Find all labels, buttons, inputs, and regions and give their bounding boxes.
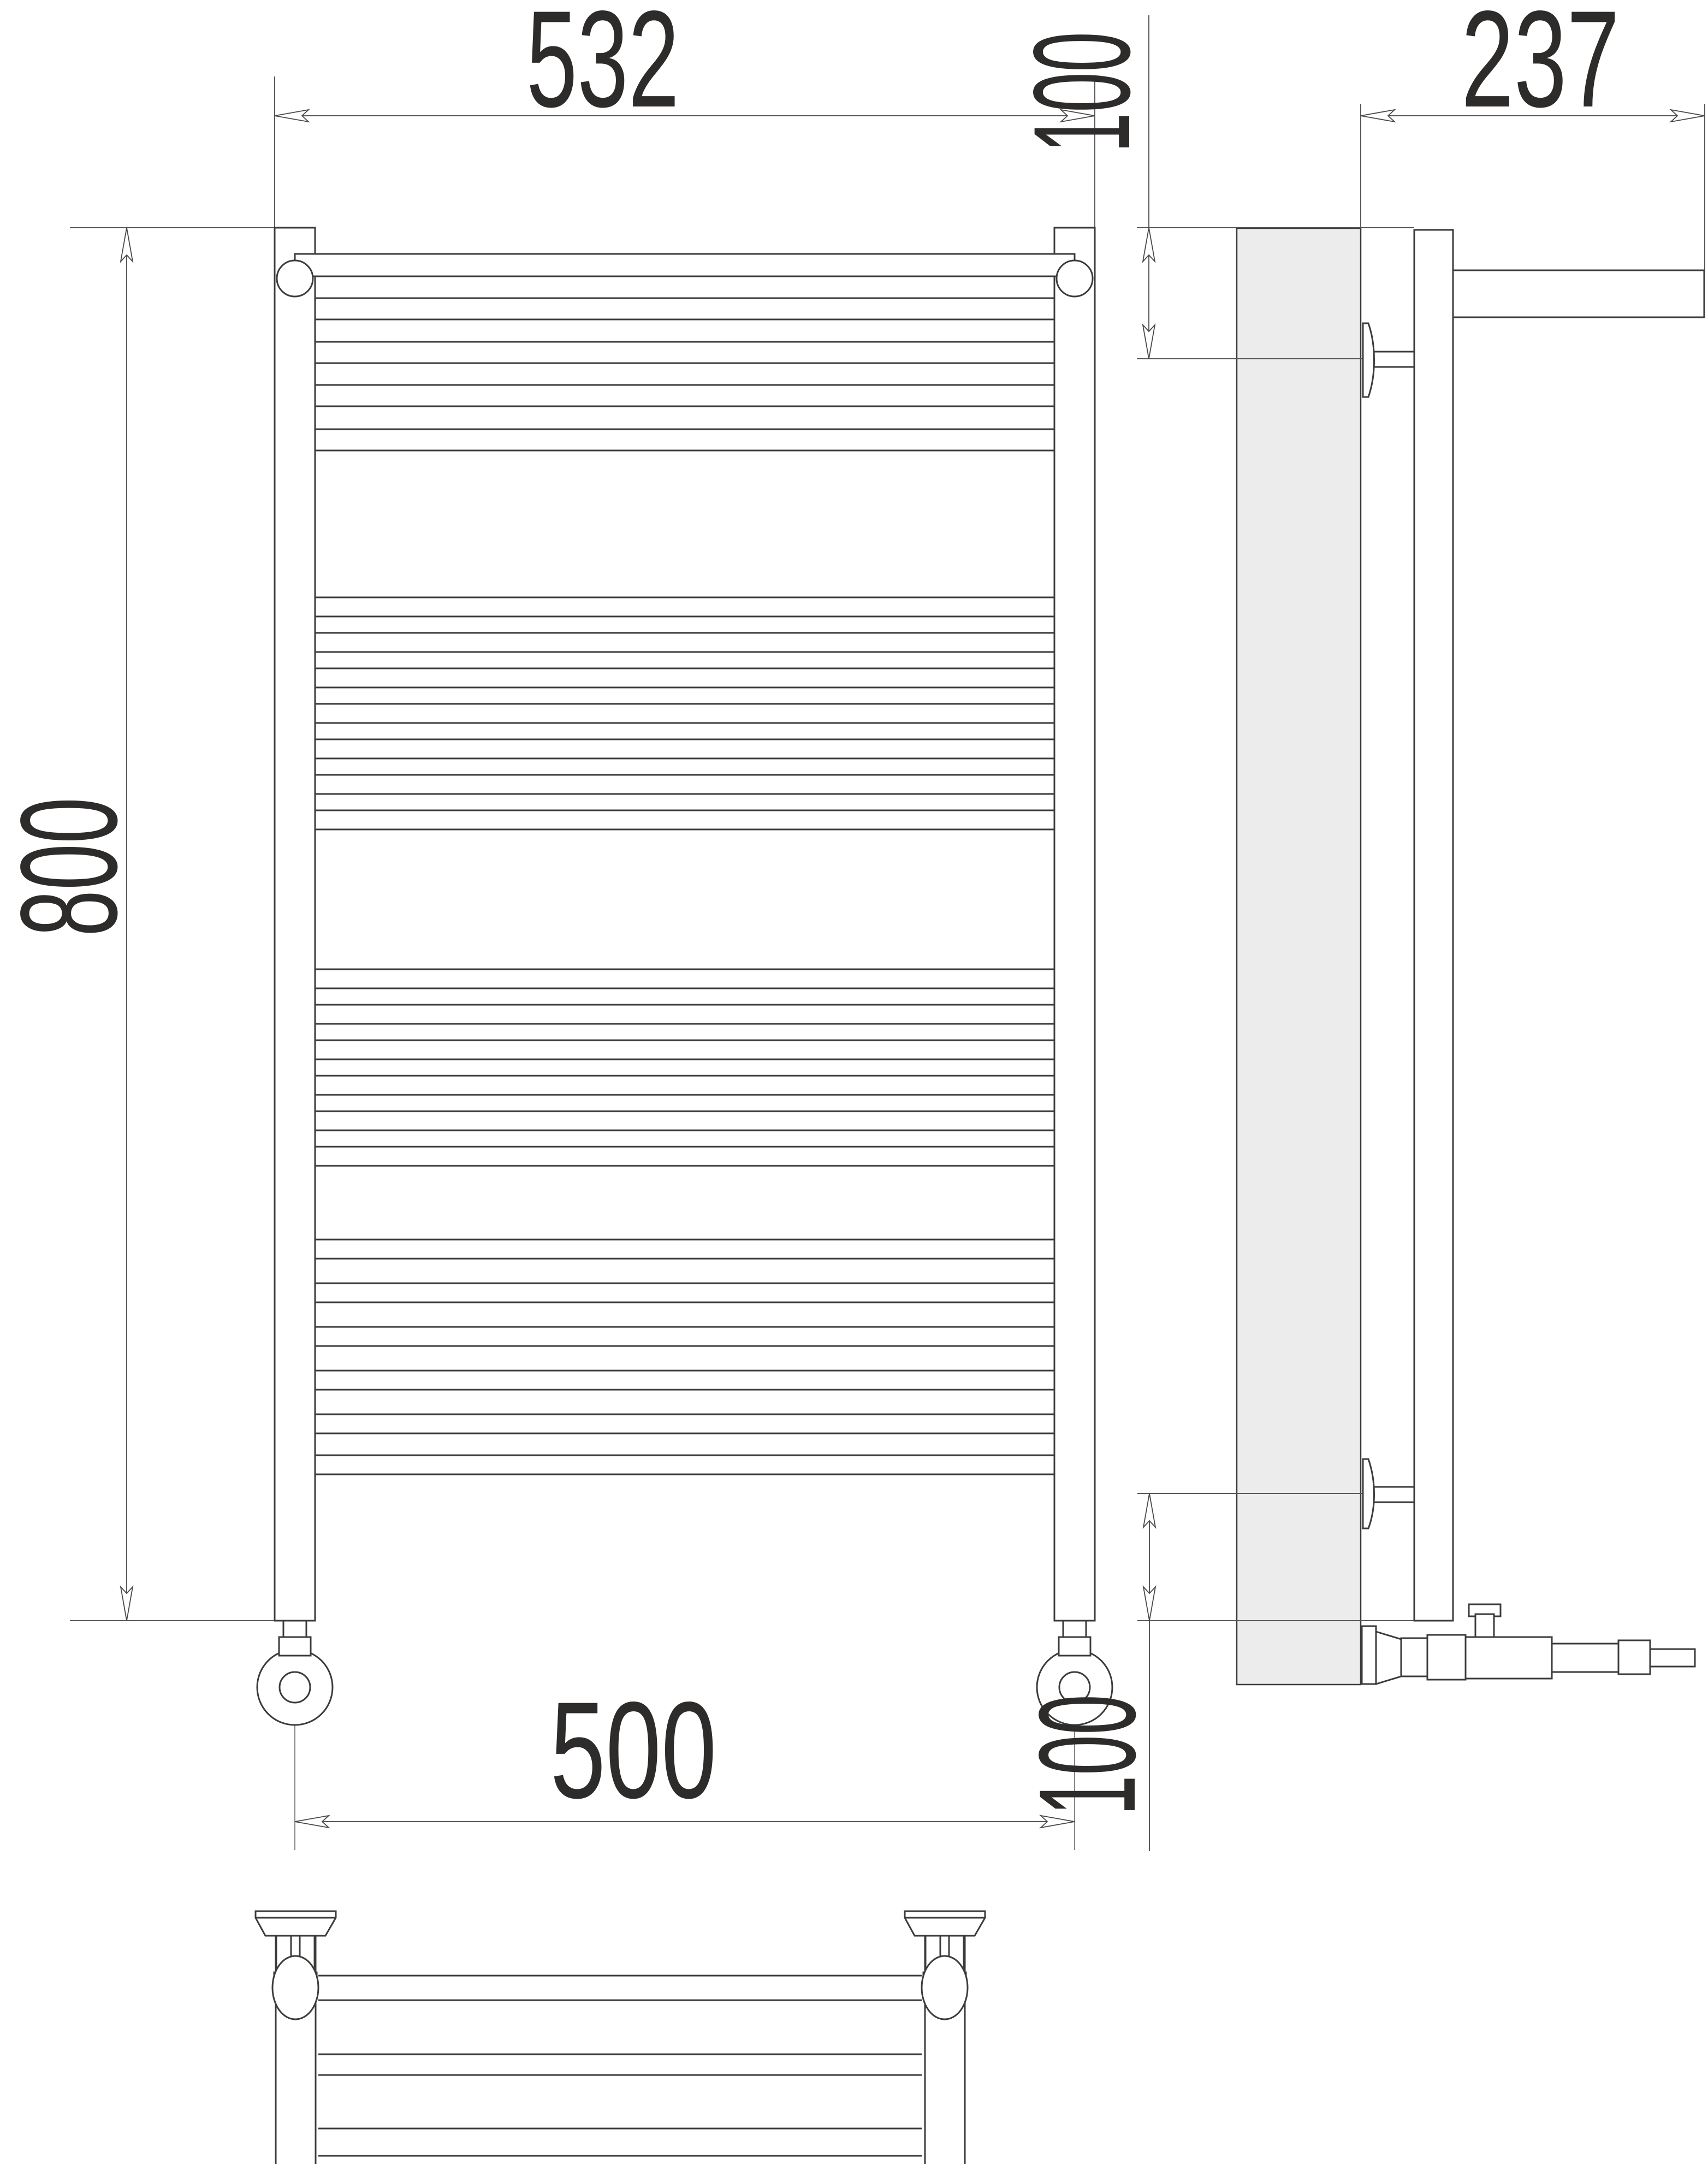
bottom-rail-tube <box>318 1976 922 2000</box>
bottom-view <box>256 1911 985 2164</box>
front-left-valve <box>257 1621 333 1850</box>
side-valve-assembly <box>1362 1604 1695 1684</box>
bottom-left-post-assembly <box>256 1911 336 2164</box>
side-top-bracket <box>1363 323 1414 397</box>
bottom-right-post-assembly <box>905 1911 985 2164</box>
technical-drawing: 532 800 <box>0 0 1708 2164</box>
bracket-flange <box>1363 323 1374 397</box>
dim-label-500: 500 <box>550 1674 717 1827</box>
valve-nut <box>1059 1637 1090 1656</box>
bracket-stem <box>1368 1487 1414 1502</box>
side-shelf <box>1453 270 1704 317</box>
elbow-nut <box>1401 1638 1427 1676</box>
valve-inner-circle <box>280 1672 310 1703</box>
valve-tailpiece <box>1063 1621 1086 1637</box>
dim-width-532: 532 <box>275 0 1095 228</box>
front-rung-group-3 <box>315 969 1054 1166</box>
collector-fitting <box>922 1956 968 2019</box>
bracket-flange <box>1363 1459 1374 1528</box>
valve-nut <box>279 1637 311 1656</box>
wall-plate <box>256 1911 336 1936</box>
bottom-shelf-bar-2 <box>318 2129 922 2156</box>
side-bottom-bracket <box>1363 1459 1414 1528</box>
side-view: 237 100 100 <box>1005 0 1705 1851</box>
dim-label-237: 237 <box>1461 0 1620 136</box>
drawing-sheet: 532 800 <box>0 0 1708 2164</box>
elbow-wall-piece <box>1362 1626 1376 1684</box>
valve-union <box>1427 1635 1466 1680</box>
dim-label-800: 800 <box>0 797 146 936</box>
front-top-rail-right-fitting <box>1057 260 1093 297</box>
front-top-rail <box>295 254 1075 276</box>
wall-profile <box>1237 228 1361 1685</box>
dim-height-800: 800 <box>0 228 275 1621</box>
dim-depth-237: 237 <box>1361 0 1705 270</box>
front-rung-group-2 <box>315 597 1054 829</box>
valve-end-nut <box>1618 1640 1650 1674</box>
collector-fitting <box>272 1956 318 2019</box>
front-rung-group-4 <box>315 1240 1054 1474</box>
front-left-post <box>275 228 315 1621</box>
valve-outlet <box>1552 1644 1618 1672</box>
bracket-stem <box>1368 352 1414 367</box>
front-top-rail-left-fitting <box>277 260 313 297</box>
front-right-post <box>1054 228 1095 1621</box>
dim-label-100-top: 100 <box>1005 32 1159 153</box>
side-post-profile <box>1414 230 1453 1621</box>
elbow-cone <box>1376 1632 1401 1684</box>
front-view: 532 800 <box>0 0 1112 1850</box>
valve-handle-stem <box>1475 1614 1494 1639</box>
wall-plate <box>905 1911 985 1936</box>
valve-tailpiece <box>283 1621 306 1637</box>
valve-stub <box>1650 1649 1695 1667</box>
bottom-shelf-bar-1 <box>318 2054 922 2075</box>
dim-label-100-bottom: 100 <box>1011 1694 1164 1816</box>
dim-spacing-500: 500 <box>295 1674 1075 1828</box>
valve-body <box>1466 1637 1552 1679</box>
front-rung-group-1 <box>315 298 1054 450</box>
dim-label-532: 532 <box>526 0 679 136</box>
